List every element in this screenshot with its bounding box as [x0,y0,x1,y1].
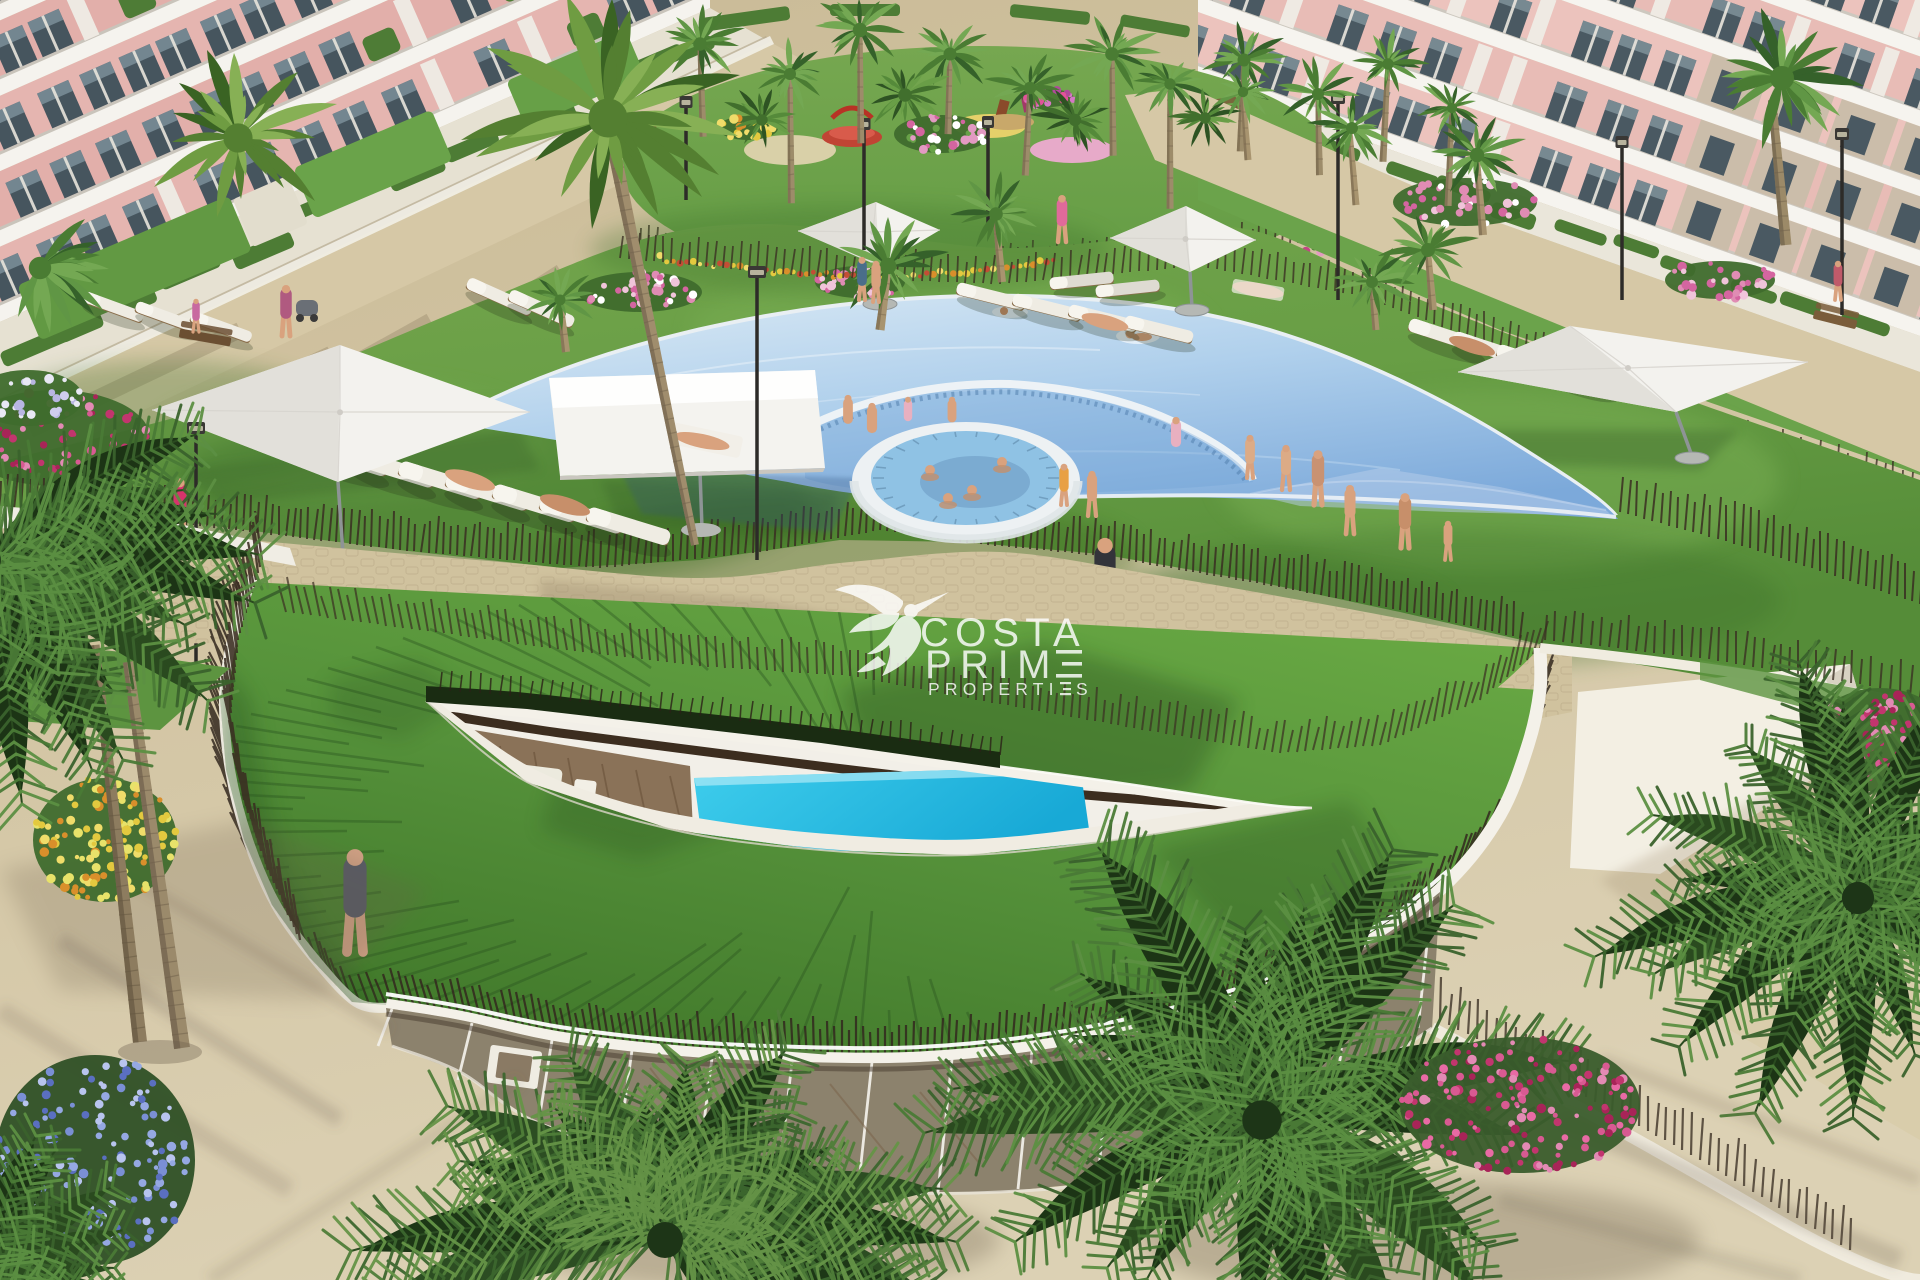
svg-text:PROPERTI: PROPERTI [928,679,1059,699]
svg-text:S: S [1076,679,1093,699]
